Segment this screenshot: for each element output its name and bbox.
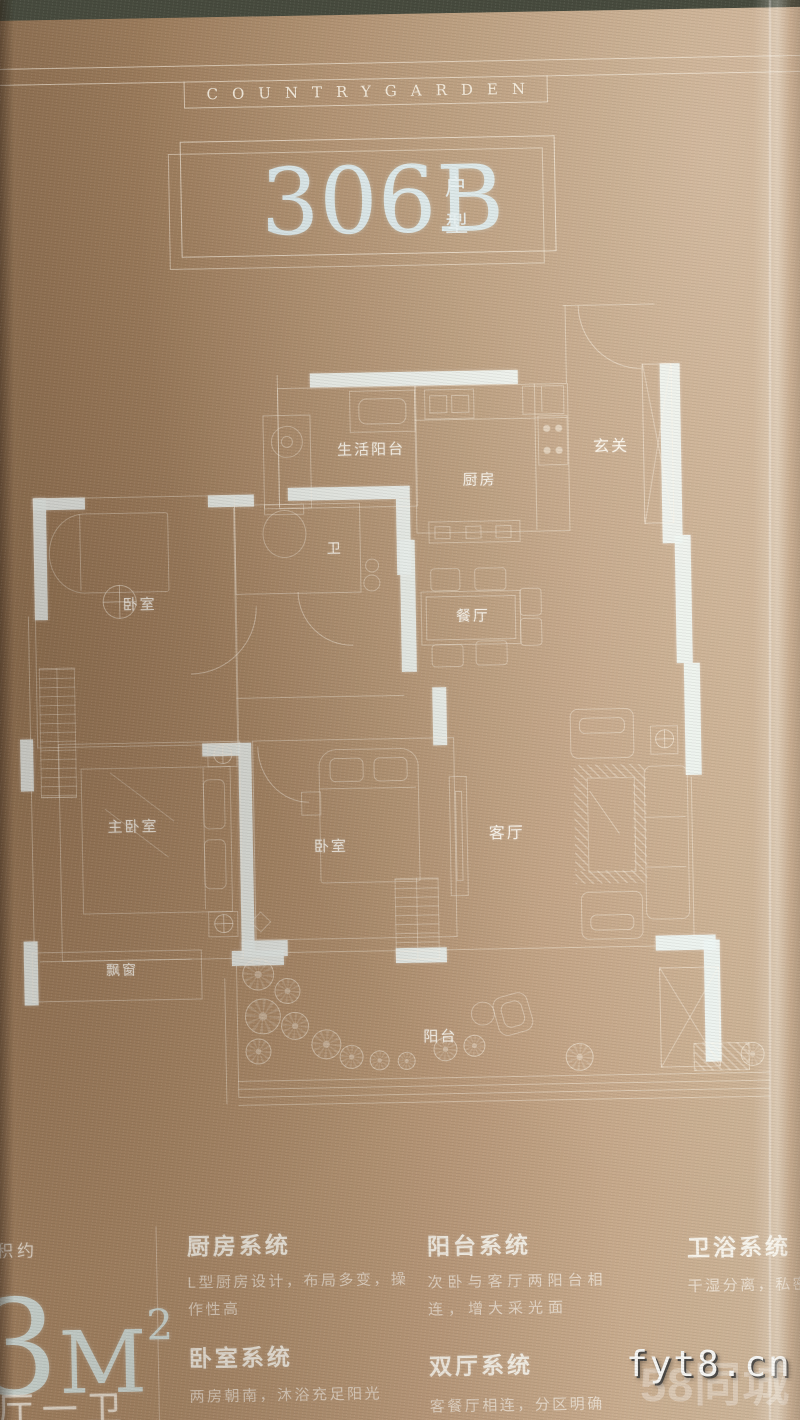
wall-segment: [660, 363, 683, 543]
brand-banner: COUNTRYGARDEN: [184, 75, 548, 108]
wall-segment: [24, 941, 39, 1005]
lamp-icon: [214, 914, 233, 933]
plant-icon: [339, 1045, 363, 1069]
column-divider: [156, 1226, 161, 1420]
fridge-icon: [522, 385, 564, 415]
system-desc-bathroom: 干湿分离，私密性: [687, 1270, 800, 1300]
rug-border: [574, 764, 646, 778]
washer-icon: [271, 426, 304, 459]
banner-line-bottom: [0, 71, 800, 87]
wall-line: [28, 616, 35, 946]
laundry-closet: [262, 415, 312, 510]
room-label-bay-window: 飘窗: [106, 963, 138, 978]
rug-border: [575, 870, 647, 884]
cabinet-row: [428, 520, 520, 544]
unit-type-label: 户型: [444, 169, 471, 243]
wall-line: [447, 946, 656, 951]
chair-icon: [475, 640, 507, 666]
wall-line: [563, 303, 655, 306]
patio-chair-icon: [490, 990, 536, 1038]
plant-icon: [242, 958, 275, 991]
room-label-bedroom-middle: 卧室: [314, 839, 348, 855]
plant-icon: [245, 998, 282, 1035]
room-label-kitchen: 厨房: [462, 472, 496, 488]
toilet-tank: [264, 504, 304, 516]
lamp-icon: [655, 729, 674, 748]
bay-window: [32, 949, 203, 1002]
banner-line-top: [0, 55, 800, 71]
wall-segment: [656, 935, 716, 951]
wardrobe-icon: [395, 877, 440, 960]
wall-segment: [33, 498, 48, 620]
bath-door-arc: [298, 591, 354, 647]
shaft-icon: [642, 363, 675, 523]
room-label-living: 客厅: [489, 826, 525, 843]
system-title-balcony: 阳台系统: [427, 1234, 531, 1259]
wall-line: [277, 375, 280, 507]
ac-platform-icon: [659, 966, 721, 1067]
plant-icon: [463, 1035, 485, 1057]
lamp-icon: [213, 745, 232, 764]
wall-segment: [396, 499, 411, 575]
bed-icon: [48, 512, 169, 594]
rug-center: [587, 777, 637, 873]
room-label-entry: 玄关: [593, 439, 629, 456]
counter-line: [534, 384, 538, 530]
system-desc-balcony: 次卧与客厅两阳台相连，增大采光面: [427, 1266, 640, 1324]
plant-icon: [245, 1038, 271, 1064]
entry-door-arc: [578, 304, 642, 370]
wall-line: [224, 978, 227, 1104]
room-label-bedroom-top: 卧室: [123, 597, 157, 613]
room-label-service-balcony: 生活阳台: [337, 442, 405, 458]
bedroom-top-room: [33, 495, 239, 748]
wall-segment: [704, 939, 722, 1061]
balcony-railing-line: [238, 1072, 770, 1082]
wall-line: [284, 950, 396, 953]
chair-icon: [474, 567, 506, 591]
title-frame-outer: [180, 135, 557, 258]
bathroom: [234, 503, 362, 595]
plant-icon: [565, 1043, 593, 1071]
wall-segment: [232, 950, 284, 966]
equipment-box-icon: [693, 1042, 749, 1071]
counter-line: [415, 417, 567, 421]
bedroom-middle-room: [252, 737, 457, 940]
plant-icon: [311, 1029, 342, 1060]
wall-segment: [396, 947, 447, 963]
wall-segment: [684, 663, 702, 775]
wall-line: [565, 305, 567, 383]
wall-segment: [238, 743, 255, 957]
nightstand-icon: [207, 743, 237, 768]
area-figure: 3 M 2: [0, 1280, 175, 1415]
wall-line: [691, 777, 695, 937]
layout-partial-text: 厅一卫: [0, 1391, 130, 1420]
plant-icon: [370, 1050, 390, 1070]
brochure-photo: COUNTRYGARDEN 306B 户型: [0, 0, 800, 1420]
armchair-icon: [581, 891, 644, 940]
wall-segment: [20, 739, 34, 791]
bed-icon: [318, 748, 420, 884]
kitchen-sink-icon: [424, 389, 475, 420]
bed-icon: [81, 766, 234, 915]
plant-icon: [398, 1052, 416, 1070]
plant-icon: [433, 1037, 457, 1061]
wall-segment: [33, 497, 85, 510]
ceiling-fan-icon: [102, 585, 137, 620]
page-edge-line: [769, 0, 771, 1420]
system-desc-bedroom: 两房朝南，沐浴充足阳光: [189, 1379, 449, 1411]
patio-table-icon: [471, 1001, 495, 1025]
area-unit: M: [58, 1320, 148, 1408]
stove-icon: [537, 415, 568, 466]
vanity-icon: [363, 574, 380, 591]
system-title-double-hall: 双厅系统: [429, 1354, 533, 1379]
brand-name: COUNTRYGARDEN: [192, 79, 539, 103]
page-edge-shadow: [0, 0, 14, 1420]
nightstand-icon: [208, 911, 238, 938]
chair-icon: [430, 568, 460, 592]
brochure-page: COUNTRYGARDEN 306B 户型: [0, 7, 800, 1420]
dining-table-icon: [421, 590, 522, 646]
system-title-bathroom: 卫浴系统: [687, 1235, 791, 1260]
toilet-icon: [262, 510, 307, 559]
wall-segment: [242, 940, 288, 957]
wall-line: [233, 508, 238, 743]
site-watermark: fyt8.cn: [626, 1344, 792, 1385]
bay-window-line: [40, 959, 192, 963]
wall-segment: [400, 540, 417, 672]
bedroom-door-arc: [257, 746, 309, 804]
title-frame-inner: [168, 147, 545, 270]
armchair-icon: [570, 708, 635, 759]
plant-icon: [281, 1012, 309, 1040]
system-desc-kitchen: L型厨房设计，布局多变，操作性高: [187, 1266, 416, 1324]
wall-segment: [208, 495, 254, 508]
chair-icon: [520, 618, 542, 646]
wall-segment: [432, 687, 447, 745]
service-balcony-room: [277, 386, 418, 509]
plant-icon: [740, 1042, 764, 1066]
side-table-icon: [650, 725, 679, 754]
wardrobe-icon: [39, 668, 77, 799]
wall-segment: [288, 486, 410, 501]
rug-border: [633, 777, 648, 870]
system-title-bedroom: 卧室系统: [189, 1346, 293, 1371]
balcony-railing-line: [238, 1096, 770, 1106]
wall-segment: [310, 370, 518, 388]
sofa-icon: [644, 765, 691, 920]
plant-icon: [274, 978, 300, 1004]
room-label-balcony: 阳台: [423, 1029, 457, 1045]
wall-segment: [675, 535, 693, 663]
balcony-railing-line: [238, 1088, 770, 1098]
wall-line: [236, 695, 404, 699]
room-label-bath: 卫: [327, 541, 343, 555]
kitchen-room: [414, 383, 571, 534]
vanity-icon: [365, 558, 379, 572]
bedroom-door-arc: [190, 606, 258, 674]
decor-diamond-icon: [250, 911, 271, 932]
system-title-kitchen: 厨房系统: [187, 1234, 291, 1259]
balcony-railing-line: [238, 1080, 770, 1090]
master-bedroom-room: [58, 741, 244, 962]
area-exponent: 2: [146, 1304, 173, 1346]
rug-border: [574, 778, 589, 871]
pillow-icon: [204, 839, 227, 889]
chair-icon: [431, 644, 463, 668]
wall-segment: [202, 743, 240, 757]
wall-line: [236, 966, 239, 1097]
room-label-dining: 餐厅: [456, 608, 490, 624]
pillow-icon: [203, 779, 226, 829]
utility-sink-icon: [349, 390, 416, 433]
tv-console-icon: [449, 776, 469, 896]
chair-icon: [519, 588, 541, 616]
side-table-icon: [301, 791, 321, 815]
unit-number: 306B: [260, 151, 505, 252]
room-label-master-bedroom: 主卧室: [107, 819, 158, 835]
